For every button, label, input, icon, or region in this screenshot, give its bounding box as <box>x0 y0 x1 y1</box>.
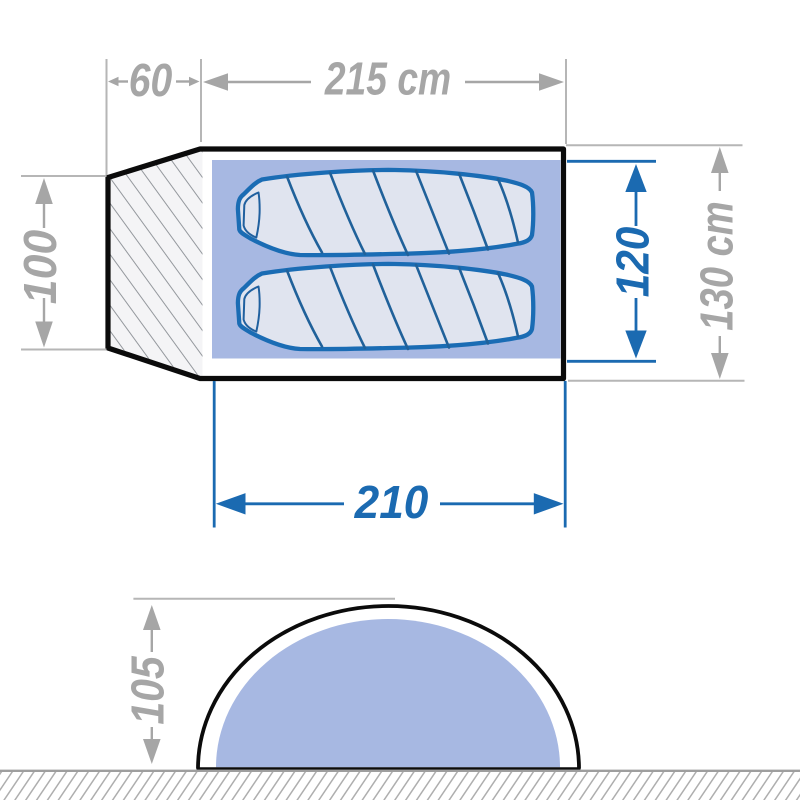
svg-text:100: 100 <box>14 230 66 304</box>
svg-text:130 cm: 130 cm <box>691 201 742 330</box>
svg-text:215 cm: 215 cm <box>324 53 451 105</box>
svg-text:60: 60 <box>129 55 173 107</box>
svg-text:120: 120 <box>608 226 659 297</box>
svg-text:210: 210 <box>354 476 429 528</box>
svg-text:105: 105 <box>123 656 174 725</box>
